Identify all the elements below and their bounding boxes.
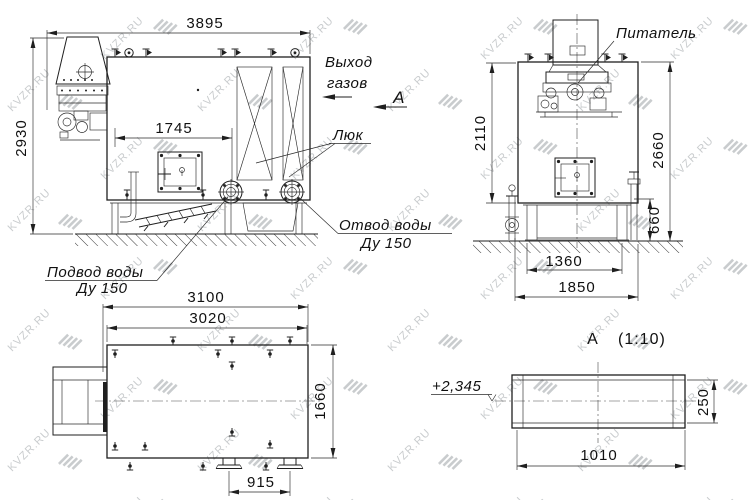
dim-overall-length: 3100 (187, 289, 224, 306)
level-mark-value: +2,345 (432, 378, 481, 395)
dim-base-height: 660 (646, 206, 663, 234)
dim-duct-width: 1010 (580, 447, 617, 464)
section-letter: А (392, 88, 405, 107)
section-title-scale: (1:10) (618, 331, 666, 348)
feeder-label: Питатель (616, 25, 697, 42)
water-inlet-label-line2: Ду 150 (75, 280, 128, 297)
hatch-label: Люк (332, 127, 364, 144)
dim-overall-height: 2930 (13, 119, 30, 156)
dim-hopper-height: 2110 (472, 115, 489, 151)
ground-hatching-front (473, 241, 683, 253)
ground-hatching (75, 234, 318, 246)
dim-body-length: 3020 (189, 310, 226, 327)
water-outlet-label-line2: Ду 150 (359, 235, 412, 252)
gas-exit-label-line2: газов (327, 75, 368, 92)
technical-drawing-page: KVZR.RU KVZR.RU (0, 0, 750, 500)
dim-overall-width-front: 1850 (558, 279, 595, 296)
dim-base-width: 1360 (545, 253, 582, 270)
dim-duct-height: 250 (695, 388, 712, 416)
dim-body-width: 1660 (312, 382, 329, 419)
dim-overall-width: 3895 (186, 15, 223, 32)
gas-exit-label-line1: Выход (325, 54, 373, 71)
section-title-letter: А (587, 331, 599, 348)
dim-burner-outlet: 1745 (155, 120, 192, 137)
dim-total-height: 2660 (650, 131, 667, 168)
water-inlet-label-line1: Подвод воды (47, 264, 143, 281)
dim-flange-spacing: 915 (247, 474, 275, 491)
water-outlet-label-line1: Отвод воды (339, 217, 432, 234)
